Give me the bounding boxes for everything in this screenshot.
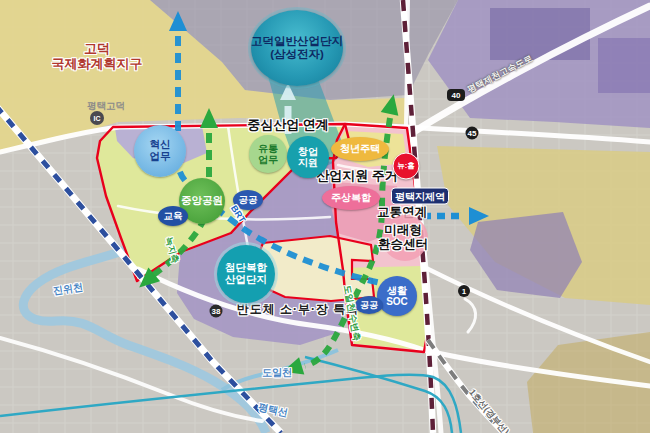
badge-route-1: 1 (458, 285, 470, 297)
zone-purple-block-2 (598, 38, 650, 93)
label-doil-stream: 도일천 (262, 367, 292, 379)
bubble-public-2: 공공 (355, 296, 383, 314)
bubble-mixed-use-housing: 주상복합 (322, 186, 380, 210)
bubble-startup-support: 창업 지원 (287, 136, 329, 178)
label-pyeongtaek-godeok-ic: 평택고덕 (87, 101, 125, 112)
bubble-distribution-business: 유통 업무 (249, 135, 287, 173)
label-semiconductor-special: 반도체 소·부·장 특화 (237, 303, 360, 317)
pyeongtaek-development-plan-map: 고덕 국제화계획지구 고덕일반산업단지 (삼성전자) 중심산업 연계 산업지원 … (0, 0, 650, 433)
bubble-innovation-business: 혁신 업무 (134, 125, 186, 177)
label-central-industry-link: 중심산업 연계 (247, 118, 329, 133)
bubble-hightech-complex: 첨단복합 산업단지 (217, 245, 275, 303)
label-industrial-support-housing: 산업지원 주거 (316, 169, 398, 184)
bubble-new-home: 뉴:홈 (393, 153, 420, 180)
badge-jije-station: 평택지제역 (391, 188, 449, 205)
label-godeok-international-district: 고덕 국제화계획지구 (52, 42, 143, 72)
anchor-godeok-industrial-complex: 고덕일반산업단지 (삼성전자) (251, 10, 343, 86)
label-future-transfer-center: 미래형 환승센터 (378, 223, 428, 252)
badge-route-40: 40 (447, 89, 465, 101)
bubble-education: 교육 (158, 206, 188, 226)
zone-purple-block-1 (490, 8, 590, 60)
badge-ic: IC (90, 111, 104, 125)
badge-route-38: 38 (210, 305, 223, 318)
bubble-living-soc: 생활 SOC (377, 276, 417, 316)
badge-route-45: 45 (466, 127, 479, 140)
bubble-youth-housing: 청년주택 (331, 137, 389, 161)
